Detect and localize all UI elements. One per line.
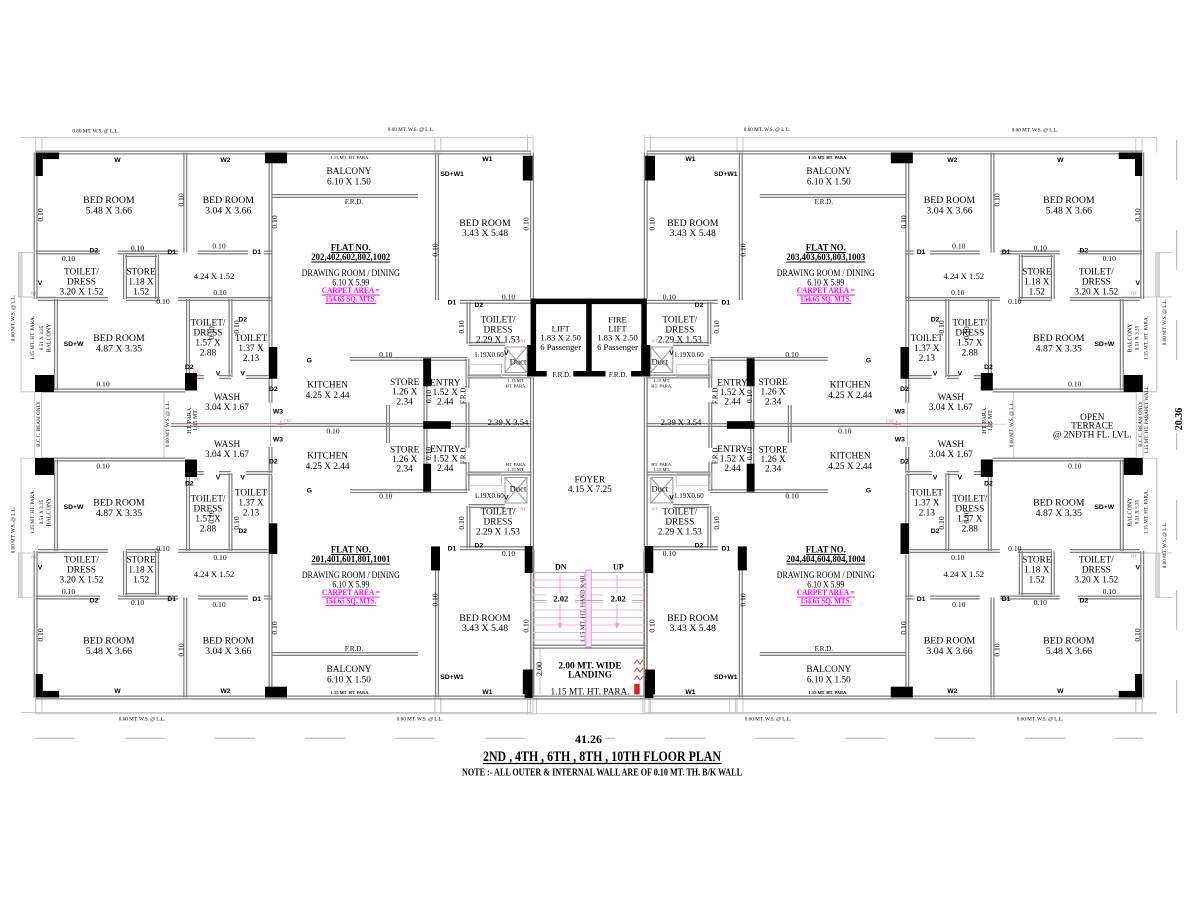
svg-text:NT: NT xyxy=(652,339,658,344)
svg-text:W3: W3 xyxy=(895,408,905,415)
svg-text:NT: NT xyxy=(193,369,199,374)
svg-text:DRESS: DRESS xyxy=(665,517,694,527)
svg-text:2.44: 2.44 xyxy=(437,398,454,408)
svg-text:0.10: 0.10 xyxy=(785,350,798,359)
svg-text:2.88: 2.88 xyxy=(200,348,217,358)
svg-text:BED ROOM: BED ROOM xyxy=(1033,333,1085,344)
svg-text:2.88: 2.88 xyxy=(200,524,217,534)
svg-text:0.10: 0.10 xyxy=(212,241,225,250)
svg-text:1.19X0.60: 1.19X0.60 xyxy=(674,351,704,359)
svg-text:4.87 X 3.35: 4.87 X 3.35 xyxy=(1036,343,1082,354)
svg-text:1.52 X: 1.52 X xyxy=(720,455,746,465)
svg-text:TOILET/: TOILET/ xyxy=(481,315,516,325)
svg-text:D2: D2 xyxy=(90,247,99,254)
svg-text:0.60 MT. W.S. @ L.L.: 0.60 MT. W.S. @ L.L. xyxy=(1017,717,1063,723)
svg-text:NT: NT xyxy=(520,507,526,512)
svg-text:D1: D1 xyxy=(917,596,926,603)
svg-text:0.10: 0.10 xyxy=(712,320,721,333)
svg-text:BALCONY: BALCONY xyxy=(327,167,372,177)
svg-text:TOILET: TOILET xyxy=(911,334,944,344)
svg-text:W1: W1 xyxy=(685,156,695,163)
svg-text:V: V xyxy=(933,370,938,377)
svg-text:HT. PARA.: HT. PARA. xyxy=(651,462,672,467)
svg-text:0.10: 0.10 xyxy=(207,510,216,523)
svg-text:1.52: 1.52 xyxy=(133,287,150,297)
svg-text:TOILET/: TOILET/ xyxy=(952,494,987,504)
svg-text:D2: D2 xyxy=(695,302,704,309)
svg-text:3.04 X 1.67: 3.04 X 1.67 xyxy=(929,403,973,413)
svg-text:0.10: 0.10 xyxy=(36,208,45,221)
svg-text:41.26: 41.26 xyxy=(575,732,602,746)
svg-text:TOILET/: TOILET/ xyxy=(1079,555,1114,565)
svg-text:0.10: 0.10 xyxy=(96,380,109,389)
svg-text:1.37 X: 1.37 X xyxy=(914,499,940,509)
svg-text:0.10: 0.10 xyxy=(745,447,754,460)
svg-text:0.10: 0.10 xyxy=(457,516,466,529)
svg-text:0.10: 0.10 xyxy=(899,621,908,634)
svg-text:1.15 MT. HT. PARA.: 1.15 MT. HT. PARA. xyxy=(30,490,36,534)
svg-text:2.34: 2.34 xyxy=(765,397,782,407)
svg-text:0.10: 0.10 xyxy=(745,390,754,403)
svg-text:D1: D1 xyxy=(167,249,176,256)
svg-text:0.10: 0.10 xyxy=(131,598,144,607)
svg-text:V: V xyxy=(1136,280,1141,287)
svg-text:TOILET/: TOILET/ xyxy=(662,507,697,517)
svg-text:W: W xyxy=(114,157,121,164)
svg-text:0.60 MT. W.S. @ L.L.: 0.60 MT. W.S. @ L.L. xyxy=(744,127,790,133)
svg-text:0.10: 0.10 xyxy=(1034,243,1047,252)
svg-text:D2: D2 xyxy=(474,543,483,550)
svg-text:0.10: 0.10 xyxy=(213,553,226,562)
svg-text:BED ROOM: BED ROOM xyxy=(83,636,135,647)
svg-text:0.51 X 3.35: 0.51 X 3.35 xyxy=(1135,325,1141,350)
svg-text:0.10: 0.10 xyxy=(502,292,515,301)
svg-text:@ 2NDTH FL. LVL.: @ 2NDTH FL. LVL. xyxy=(1053,431,1132,441)
svg-text:NT: NT xyxy=(652,507,658,512)
svg-text:D2: D2 xyxy=(695,543,704,550)
svg-text:0.51 X 3.35: 0.51 X 3.35 xyxy=(39,325,45,350)
svg-text:4.25 X 2.44: 4.25 X 2.44 xyxy=(306,462,350,472)
svg-text:D1: D1 xyxy=(1002,249,1011,256)
svg-text:ENTRY: ENTRY xyxy=(430,445,461,455)
svg-text:1.18 X: 1.18 X xyxy=(1024,565,1050,575)
svg-text:BED ROOM: BED ROOM xyxy=(203,636,255,647)
svg-text:0.10: 0.10 xyxy=(785,492,798,501)
svg-text:D2: D2 xyxy=(1079,597,1088,604)
svg-text:5.48 X 3.66: 5.48 X 3.66 xyxy=(86,646,132,657)
svg-text:4.87 X 3.35: 4.87 X 3.35 xyxy=(1036,508,1082,519)
svg-text:1.37 X: 1.37 X xyxy=(238,344,264,354)
svg-text:1.37 X: 1.37 X xyxy=(914,344,940,354)
svg-text:1.52: 1.52 xyxy=(133,575,150,585)
svg-text:1.15 MT.: 1.15 MT. xyxy=(508,467,525,472)
svg-text:TOILET: TOILET xyxy=(911,489,944,499)
svg-text:0.10: 0.10 xyxy=(1008,297,1021,306)
svg-text:0.60 MT. W.S. @ L.L.: 0.60 MT. W.S. @ L.L. xyxy=(745,717,791,723)
svg-text:1.26 X: 1.26 X xyxy=(392,455,418,465)
svg-text:V: V xyxy=(240,474,245,481)
svg-text:0.10: 0.10 xyxy=(96,462,109,471)
svg-text:W1: W1 xyxy=(685,689,695,696)
svg-text:5.48 X 3.66: 5.48 X 3.66 xyxy=(1046,646,1092,657)
svg-text:TOILET/: TOILET/ xyxy=(662,315,697,325)
svg-text:F.R.D.: F.R.D. xyxy=(609,371,628,379)
svg-text:2.13: 2.13 xyxy=(919,354,936,364)
svg-text:WASH: WASH xyxy=(214,440,241,450)
svg-text:BED ROOM: BED ROOM xyxy=(459,613,511,624)
svg-text:4.15 X 7.25: 4.15 X 7.25 xyxy=(568,485,612,495)
svg-text:4.24 X 1.52: 4.24 X 1.52 xyxy=(194,271,235,281)
svg-text:F.R.D.: F.R.D. xyxy=(815,645,834,653)
svg-text:3.43 X 5.48: 3.43 X 5.48 xyxy=(462,228,508,239)
svg-text:1.52: 1.52 xyxy=(1029,575,1046,585)
svg-text:TOILET/: TOILET/ xyxy=(64,555,99,565)
svg-text:KITCHEN: KITCHEN xyxy=(307,381,348,391)
svg-text:BED ROOM: BED ROOM xyxy=(1043,636,1095,647)
svg-text:20.36: 20.36 xyxy=(1174,408,1185,431)
svg-text:1.26 X: 1.26 X xyxy=(760,455,786,465)
svg-text:4.25 X 2.44: 4.25 X 2.44 xyxy=(828,462,872,472)
svg-text:TOILET/: TOILET/ xyxy=(64,267,99,277)
svg-text:154.65 SQ. MTS.: 154.65 SQ. MTS. xyxy=(800,596,851,606)
svg-text:1.15 MT.: 1.15 MT. xyxy=(653,378,670,383)
svg-text:W2: W2 xyxy=(220,157,230,164)
svg-text:1.18 X: 1.18 X xyxy=(128,277,154,287)
svg-text:2.13: 2.13 xyxy=(243,354,260,364)
svg-text:G: G xyxy=(866,357,871,364)
svg-text:0.10: 0.10 xyxy=(899,215,908,228)
svg-text:W1: W1 xyxy=(482,689,492,696)
svg-text:0.10: 0.10 xyxy=(663,292,676,301)
svg-text:0.10: 0.10 xyxy=(457,320,466,333)
svg-text:BED ROOM: BED ROOM xyxy=(924,195,976,206)
svg-text:F.R.D.: F.R.D. xyxy=(553,371,572,379)
svg-text:W3: W3 xyxy=(895,436,905,443)
svg-text:SD+W1: SD+W1 xyxy=(714,171,738,178)
svg-text:DRESS: DRESS xyxy=(665,325,694,335)
svg-text:BED ROOM: BED ROOM xyxy=(667,613,719,624)
svg-text:1.15 MT. HT. PARA.: 1.15 MT. HT. PARA. xyxy=(30,316,36,360)
svg-text:UP: UP xyxy=(613,563,624,572)
svg-text:F.R.D.: F.R.D. xyxy=(345,198,364,206)
svg-text:BED ROOM: BED ROOM xyxy=(1033,498,1085,509)
svg-text:F.R.D.: F.R.D. xyxy=(459,386,467,405)
svg-text:DRESS: DRESS xyxy=(67,277,96,287)
svg-text:W2: W2 xyxy=(947,688,957,695)
svg-text:F.R.D.: F.R.D. xyxy=(459,446,467,465)
svg-text:STORE: STORE xyxy=(1022,267,1052,277)
svg-text:3.43 X 5.48: 3.43 X 5.48 xyxy=(670,228,716,239)
svg-text:0.60 MT. W.S. @ L.L.: 0.60 MT. W.S. @ L.L. xyxy=(1009,401,1015,447)
svg-text:0.10: 0.10 xyxy=(62,587,75,596)
svg-text:SD+W: SD+W xyxy=(64,504,84,511)
svg-text:BALCONY: BALCONY xyxy=(1128,323,1134,353)
svg-text:D2: D2 xyxy=(185,481,194,488)
svg-text:W2: W2 xyxy=(947,157,957,164)
svg-text:D1: D1 xyxy=(252,596,261,603)
svg-text:0.10: 0.10 xyxy=(431,243,440,256)
svg-text:F.R.D.: F.R.D. xyxy=(345,645,364,653)
svg-text:0.10: 0.10 xyxy=(1068,380,1081,389)
svg-text:2.34: 2.34 xyxy=(765,465,782,475)
svg-text:W: W xyxy=(1057,157,1064,164)
svg-text:STORE: STORE xyxy=(126,555,156,565)
svg-text:0.60 MT. W.S. @ L.L.: 0.60 MT. W.S. @ L.L. xyxy=(1162,522,1168,568)
svg-text:DRESS: DRESS xyxy=(1082,277,1111,287)
svg-text:FOYER: FOYER xyxy=(575,475,606,485)
svg-text:2.44: 2.44 xyxy=(724,464,741,474)
svg-text:2.00: 2.00 xyxy=(535,662,544,676)
svg-text:Duct: Duct xyxy=(510,357,527,367)
svg-text:W3: W3 xyxy=(273,408,283,415)
svg-text:3.04 X 1.67: 3.04 X 1.67 xyxy=(205,450,249,460)
svg-text:NT: NT xyxy=(31,291,37,296)
svg-text:1.52 X: 1.52 X xyxy=(433,388,459,398)
svg-text:V: V xyxy=(958,474,963,481)
svg-text:V: V xyxy=(1136,565,1141,572)
svg-text:0.10: 0.10 xyxy=(962,326,971,339)
svg-text:WASH: WASH xyxy=(938,393,965,403)
svg-text:6.10 X 1.50: 6.10 X 1.50 xyxy=(327,675,371,685)
svg-text:G: G xyxy=(307,357,312,364)
svg-text:0.10: 0.10 xyxy=(739,593,748,606)
svg-text:HT. PARA.: HT. PARA. xyxy=(505,462,526,467)
svg-text:1.19X0.60: 1.19X0.60 xyxy=(474,351,504,359)
svg-text:1.15 MT. HT. PARA.: 1.15 MT. HT. PARA. xyxy=(808,155,847,160)
svg-text:1.18 X: 1.18 X xyxy=(128,565,154,575)
svg-text:NT: NT xyxy=(193,477,199,482)
svg-text:SD+W1: SD+W1 xyxy=(440,674,464,681)
svg-text:2.13: 2.13 xyxy=(919,509,936,519)
svg-text:0.10: 0.10 xyxy=(648,217,657,230)
svg-text:202,402,602,802,1002: 202,402,602,802,1002 xyxy=(311,252,390,263)
svg-text:1.26 X: 1.26 X xyxy=(392,388,418,398)
svg-text:0.10: 0.10 xyxy=(1103,587,1116,596)
svg-text:Duct: Duct xyxy=(510,484,527,494)
svg-text:TOILET/: TOILET/ xyxy=(1079,267,1114,277)
svg-text:V: V xyxy=(216,370,221,377)
svg-text:TOILET: TOILET xyxy=(235,489,268,499)
svg-text:BALCONY: BALCONY xyxy=(47,497,53,527)
svg-text:203,403,603,803,1003: 203,403,603,803,1003 xyxy=(786,252,865,263)
svg-text:D1: D1 xyxy=(721,299,730,306)
svg-text:2.13: 2.13 xyxy=(243,509,260,519)
svg-text:0.10: 0.10 xyxy=(1068,462,1081,471)
svg-text:V: V xyxy=(933,474,938,481)
svg-text:1.15 MT. HT. PARA.: 1.15 MT. HT. PARA. xyxy=(1144,490,1150,534)
svg-text:DRESS: DRESS xyxy=(67,565,96,575)
svg-text:V: V xyxy=(240,370,245,377)
svg-text:1.15 MT.: 1.15 MT. xyxy=(988,408,994,431)
svg-text:1.15 MT.: 1.15 MT. xyxy=(653,467,670,472)
svg-text:4.24 X 1.52: 4.24 X 1.52 xyxy=(194,569,235,579)
svg-text:0.10: 0.10 xyxy=(207,326,216,339)
svg-text:1.19X0.60: 1.19X0.60 xyxy=(474,492,504,500)
svg-text:0.51 X 3.35: 0.51 X 3.35 xyxy=(1135,499,1141,524)
svg-text:ENTRY: ENTRY xyxy=(430,379,461,389)
svg-text:2.34: 2.34 xyxy=(397,397,414,407)
svg-text:TOILET/: TOILET/ xyxy=(481,507,516,517)
svg-text:BED ROOM: BED ROOM xyxy=(93,333,145,344)
svg-text:1.15 MT. HT. PARA.: 1.15 MT. HT. PARA. xyxy=(330,690,369,695)
svg-text:0.10: 0.10 xyxy=(937,320,946,333)
svg-text:D2: D2 xyxy=(984,481,993,488)
svg-text:6.10 X 1.50: 6.10 X 1.50 xyxy=(807,675,851,685)
svg-text:1.18 X: 1.18 X xyxy=(1024,277,1050,287)
svg-text:DRESS: DRESS xyxy=(1082,565,1111,575)
svg-text:D2: D2 xyxy=(269,459,278,466)
svg-text:0.10: 0.10 xyxy=(1133,208,1142,221)
svg-text:4.25 X 2.44: 4.25 X 2.44 xyxy=(828,391,872,401)
svg-text:STORE: STORE xyxy=(758,378,788,388)
svg-text:NT: NT xyxy=(520,339,526,344)
svg-text:WASH: WASH xyxy=(214,393,241,403)
svg-text:STORE: STORE xyxy=(126,267,156,277)
svg-text:0.10: 0.10 xyxy=(232,320,241,333)
svg-text:0.51 X 3.35: 0.51 X 3.35 xyxy=(39,499,45,524)
svg-text:204,404,604,804,1004: 204,404,604,804,1004 xyxy=(786,554,865,565)
svg-text:TOILET/: TOILET/ xyxy=(191,494,226,504)
svg-text:R.C.C. BEAM ONLY: R.C.C. BEAM ONLY xyxy=(36,401,42,447)
svg-text:NT: NT xyxy=(31,555,37,560)
svg-text:V: V xyxy=(504,350,509,357)
svg-text:D2: D2 xyxy=(1079,247,1088,254)
svg-text:1.19X0.60: 1.19X0.60 xyxy=(674,492,704,500)
svg-text:1.15 MT. HT. HAND RAIL: 1.15 MT. HT. HAND RAIL xyxy=(580,573,587,642)
svg-text:0.10: 0.10 xyxy=(156,544,169,553)
svg-text:DN: DN xyxy=(555,563,567,572)
svg-text:D1: D1 xyxy=(448,545,457,552)
svg-text:0.10: 0.10 xyxy=(993,643,1002,656)
svg-text:6.10 X 1.50: 6.10 X 1.50 xyxy=(327,177,371,187)
svg-text:0.10: 0.10 xyxy=(431,593,440,606)
svg-text:BALCONY: BALCONY xyxy=(806,665,851,675)
svg-text:F.R.D.: F.R.D. xyxy=(712,446,720,465)
svg-text:W: W xyxy=(114,688,121,695)
svg-text:DRESS: DRESS xyxy=(484,325,513,335)
svg-text:0.60 MT. W.S. @ L.L.: 0.60 MT. W.S. @ L.L. xyxy=(119,717,165,723)
svg-text:201,401,601,801,1001: 201,401,601,801,1001 xyxy=(311,554,390,565)
svg-text:Duct: Duct xyxy=(651,357,668,367)
svg-text:STORE: STORE xyxy=(390,445,420,455)
svg-text:SD+W: SD+W xyxy=(1094,341,1114,348)
svg-text:6 Passenger: 6 Passenger xyxy=(540,342,581,352)
svg-text:2.34: 2.34 xyxy=(397,465,414,475)
svg-text:BED ROOM: BED ROOM xyxy=(667,218,719,229)
svg-text:D1: D1 xyxy=(721,545,730,552)
svg-text:0.10: 0.10 xyxy=(838,426,851,435)
svg-text:0.10: 0.10 xyxy=(131,243,144,252)
svg-text:2.02: 2.02 xyxy=(553,593,568,603)
svg-text:3.04 X 1.67: 3.04 X 1.67 xyxy=(205,403,249,413)
svg-text:3.20 X 1.52: 3.20 X 1.52 xyxy=(1074,287,1118,297)
svg-text:WASH: WASH xyxy=(938,440,965,450)
svg-text:0.10: 0.10 xyxy=(270,215,279,228)
svg-text:CNT: CNT xyxy=(886,419,895,424)
svg-text:HT. PARA.: HT. PARA. xyxy=(505,384,526,389)
svg-text:0.60 MT. W.S. @ L.L.: 0.60 MT. W.S. @ L.L. xyxy=(1162,299,1168,345)
svg-text:3.04 X 3.66: 3.04 X 3.66 xyxy=(926,646,972,657)
svg-text:G: G xyxy=(307,487,312,494)
svg-text:5.48 X 3.66: 5.48 X 3.66 xyxy=(86,206,132,217)
svg-text:0.10: 0.10 xyxy=(739,243,748,256)
svg-text:2.39 X 3.54: 2.39 X 3.54 xyxy=(661,417,702,427)
svg-text:0.60 MT. W.S. @ L.L.: 0.60 MT. W.S. @ L.L. xyxy=(72,129,118,135)
svg-text:SD+W: SD+W xyxy=(64,341,84,348)
svg-text:D1: D1 xyxy=(448,299,457,306)
svg-text:W3: W3 xyxy=(273,436,283,443)
svg-text:W2: W2 xyxy=(220,688,230,695)
svg-text:V: V xyxy=(216,474,221,481)
svg-text:0.10: 0.10 xyxy=(212,600,225,609)
svg-text:0.10: 0.10 xyxy=(36,628,45,641)
svg-text:3.20 X 1.52: 3.20 X 1.52 xyxy=(60,287,104,297)
svg-text:F.R.D.: F.R.D. xyxy=(712,386,720,405)
svg-text:KITCHEN: KITCHEN xyxy=(830,381,871,391)
svg-text:BALCONY: BALCONY xyxy=(47,323,53,353)
svg-text:V: V xyxy=(38,565,43,572)
svg-text:2.39 X 3.54: 2.39 X 3.54 xyxy=(488,417,529,427)
svg-text:0.10: 0.10 xyxy=(952,241,965,250)
svg-text:0.10: 0.10 xyxy=(379,492,392,501)
svg-text:V: V xyxy=(38,280,43,287)
svg-text:ENTRY: ENTRY xyxy=(717,445,748,455)
svg-text:BED ROOM: BED ROOM xyxy=(924,636,976,647)
svg-text:3.20 X 1.52: 3.20 X 1.52 xyxy=(60,575,104,585)
svg-text:0.10: 0.10 xyxy=(177,643,186,656)
svg-text:2.02: 2.02 xyxy=(611,593,626,603)
svg-text:G: G xyxy=(866,487,871,494)
svg-text:Duct: Duct xyxy=(651,484,668,494)
svg-text:2.29 X 1.53: 2.29 X 1.53 xyxy=(658,527,702,537)
svg-text:4.25 X 2.44: 4.25 X 2.44 xyxy=(306,391,350,401)
svg-text:ENTRY: ENTRY xyxy=(717,379,748,389)
svg-text:0.10: 0.10 xyxy=(1133,628,1142,641)
svg-text:0.10: 0.10 xyxy=(522,619,531,632)
svg-text:V: V xyxy=(504,495,509,502)
svg-text:NOTE :- ALL OUTER & INTERNAL W: NOTE :- ALL OUTER & INTERNAL WALL ARE OF… xyxy=(462,767,742,778)
svg-text:STORE: STORE xyxy=(758,445,788,455)
svg-text:D2: D2 xyxy=(984,364,993,371)
svg-text:HT. PARA.: HT. PARA. xyxy=(651,384,672,389)
svg-text:154.65 SQ. MTS.: 154.65 SQ. MTS. xyxy=(325,294,376,304)
svg-text:2.88: 2.88 xyxy=(962,348,979,358)
svg-text:0.60 MT. W.S. @ L.L.: 0.60 MT. W.S. @ L.L. xyxy=(10,295,16,341)
svg-text:2.44: 2.44 xyxy=(437,464,454,474)
svg-text:BED ROOM: BED ROOM xyxy=(1043,195,1095,206)
svg-text:0.10: 0.10 xyxy=(1008,544,1021,553)
svg-text:4.87 X 3.35: 4.87 X 3.35 xyxy=(96,508,142,519)
svg-text:STORE: STORE xyxy=(390,378,420,388)
svg-text:0.10: 0.10 xyxy=(952,600,965,609)
svg-text:0.10: 0.10 xyxy=(270,621,279,634)
svg-text:0.10: 0.10 xyxy=(502,549,515,558)
svg-text:BALCONY: BALCONY xyxy=(1128,497,1134,527)
svg-text:1.52 X: 1.52 X xyxy=(433,455,459,465)
svg-text:0.10: 0.10 xyxy=(379,350,392,359)
svg-text:D1: D1 xyxy=(252,249,261,256)
svg-text:1.52: 1.52 xyxy=(1029,287,1046,297)
svg-text:D2: D2 xyxy=(90,597,99,604)
svg-text:SD+W: SD+W xyxy=(1094,504,1114,511)
svg-text:BED ROOM: BED ROOM xyxy=(93,498,145,509)
svg-text:1.52 X: 1.52 X xyxy=(720,388,746,398)
svg-text:3.43 X 5.48: 3.43 X 5.48 xyxy=(462,623,508,634)
svg-text:BALCONY: BALCONY xyxy=(327,665,372,675)
svg-text:3.04 X 1.67: 3.04 X 1.67 xyxy=(929,450,973,460)
svg-text:D2: D2 xyxy=(269,386,278,393)
svg-text:STORE: STORE xyxy=(1022,555,1052,565)
